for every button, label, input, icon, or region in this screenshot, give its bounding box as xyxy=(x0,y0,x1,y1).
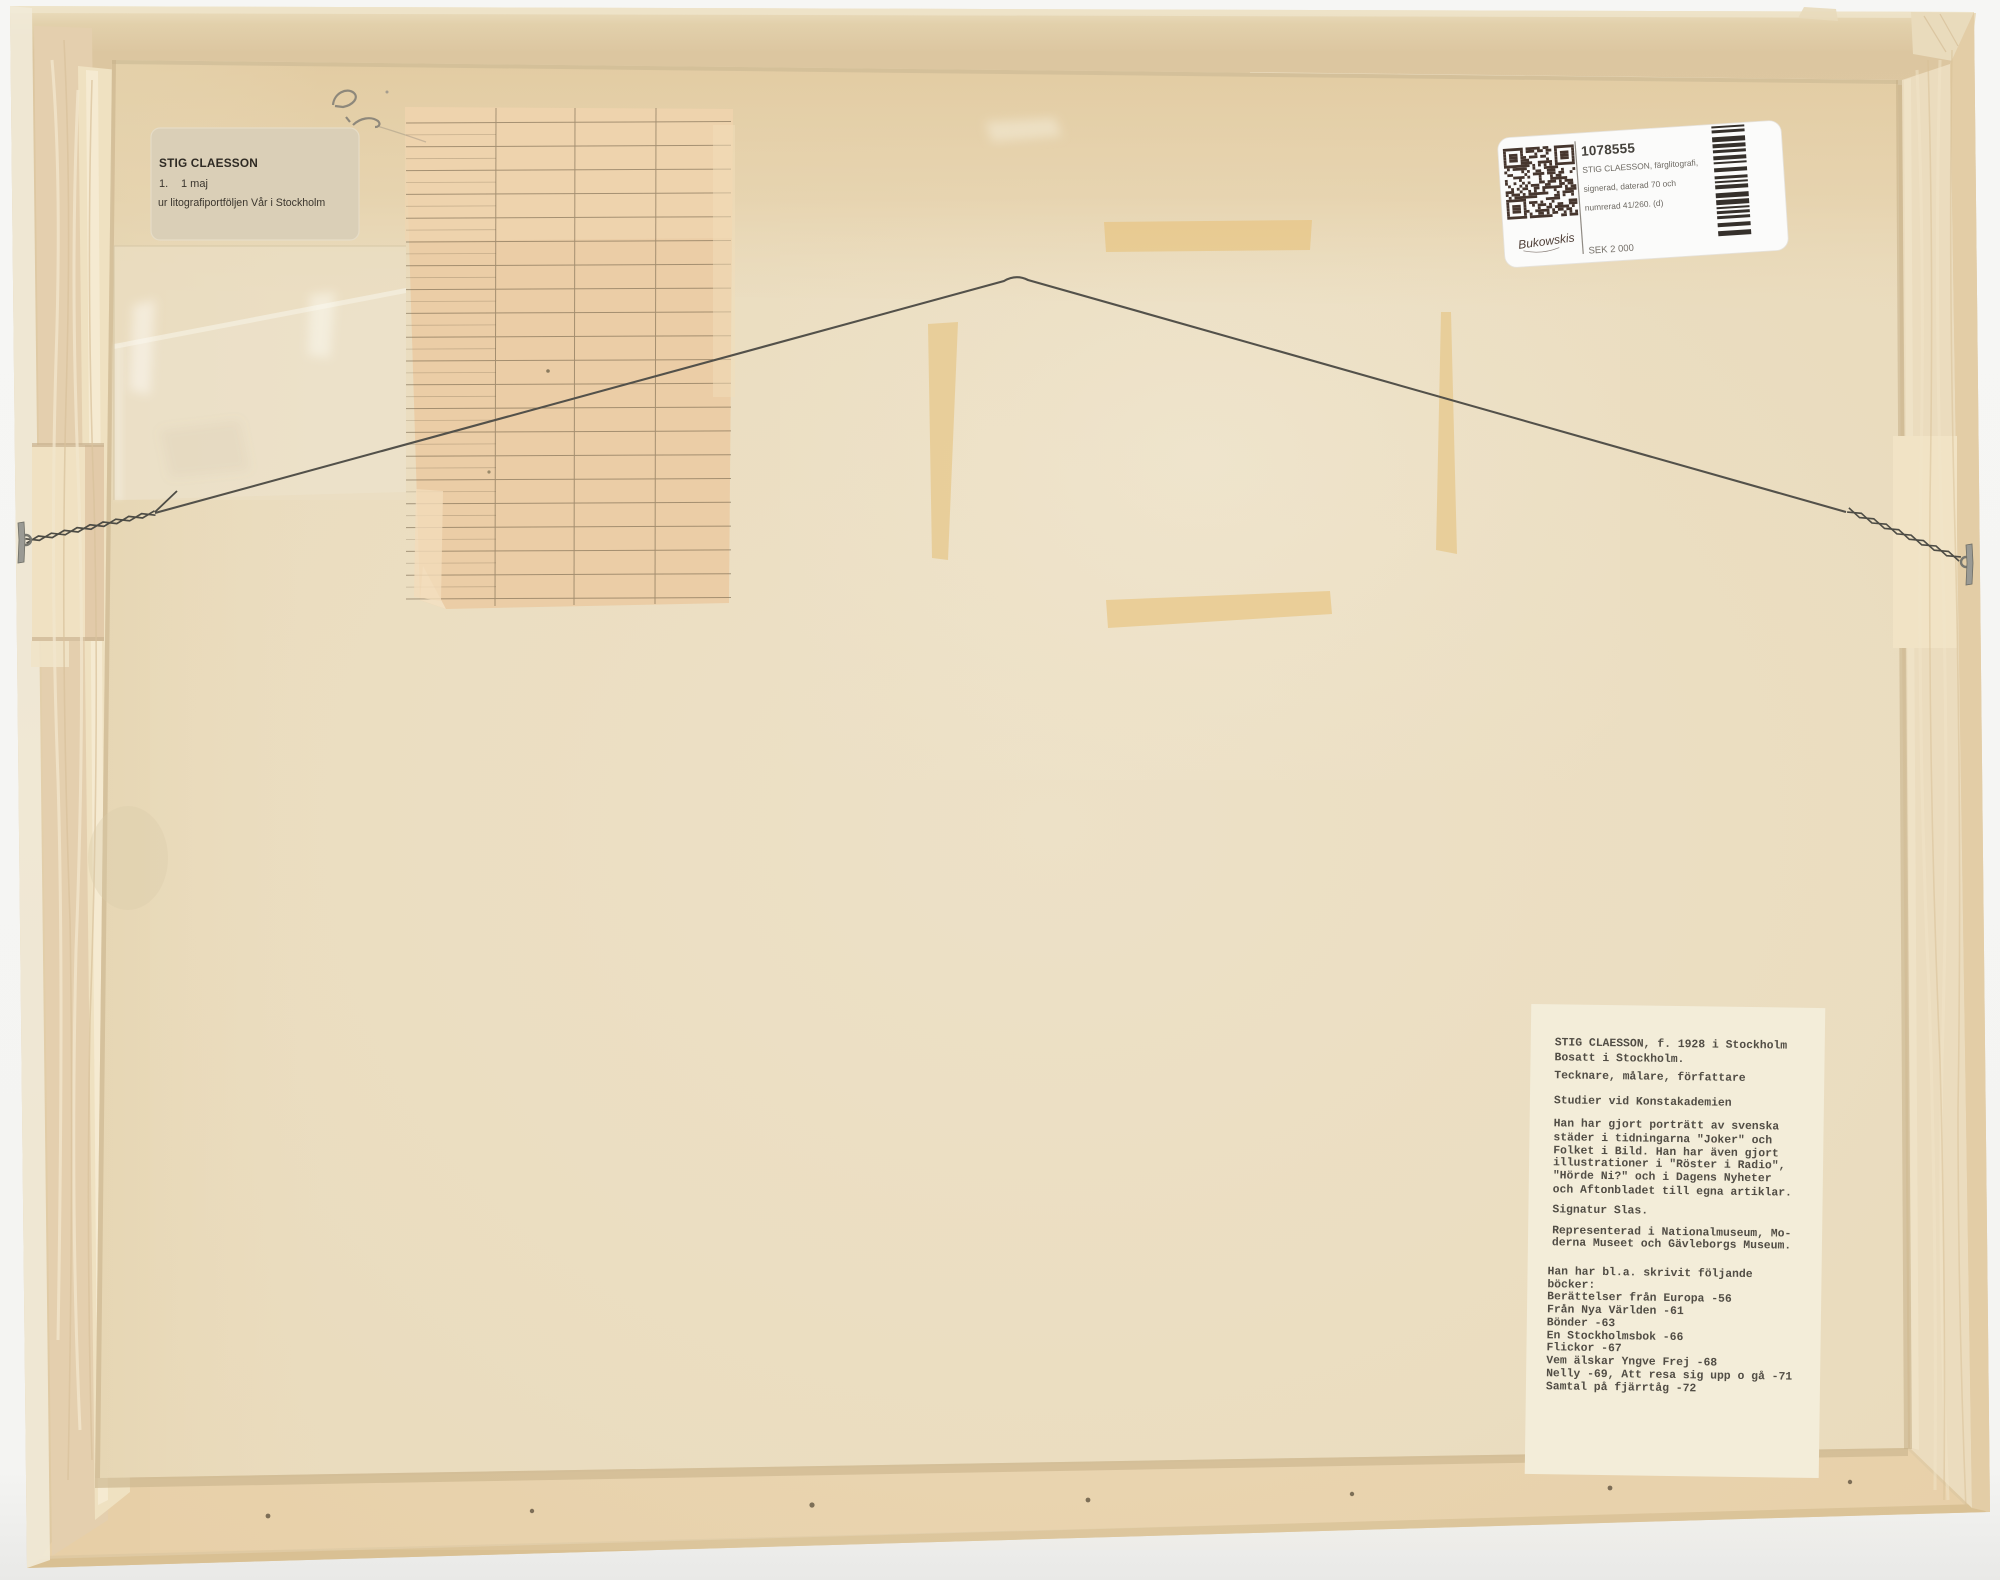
svg-text:Från Nya Världen -61: Från Nya Världen -61 xyxy=(1547,1304,1684,1318)
svg-text:STIG CLAESSON: STIG CLAESSON xyxy=(159,156,258,170)
svg-text:Flickor -67: Flickor -67 xyxy=(1546,1342,1622,1355)
svg-text:Vem älskar Yngve Frej -68: Vem älskar Yngve Frej -68 xyxy=(1546,1355,1717,1369)
svg-text:Bönder -63: Bönder -63 xyxy=(1547,1317,1616,1330)
svg-text:Signatur Slas.: Signatur Slas. xyxy=(1552,1204,1648,1217)
svg-text:Studier vid Konstakademien: Studier vid Konstakademien xyxy=(1554,1095,1732,1109)
svg-text:1.: 1. xyxy=(159,178,168,190)
svg-text:Samtal på fjärrtåg -72: Samtal på fjärrtåg -72 xyxy=(1546,1381,1697,1395)
svg-text:1 maj: 1 maj xyxy=(181,178,208,190)
svg-text:ur litografiportföljen Vår i S: ur litografiportföljen Vår i Stockholm xyxy=(158,197,325,209)
svg-text:Bosatt i Stockholm.: Bosatt i Stockholm. xyxy=(1554,1052,1684,1066)
svg-text:böcker:: böcker: xyxy=(1547,1279,1595,1292)
